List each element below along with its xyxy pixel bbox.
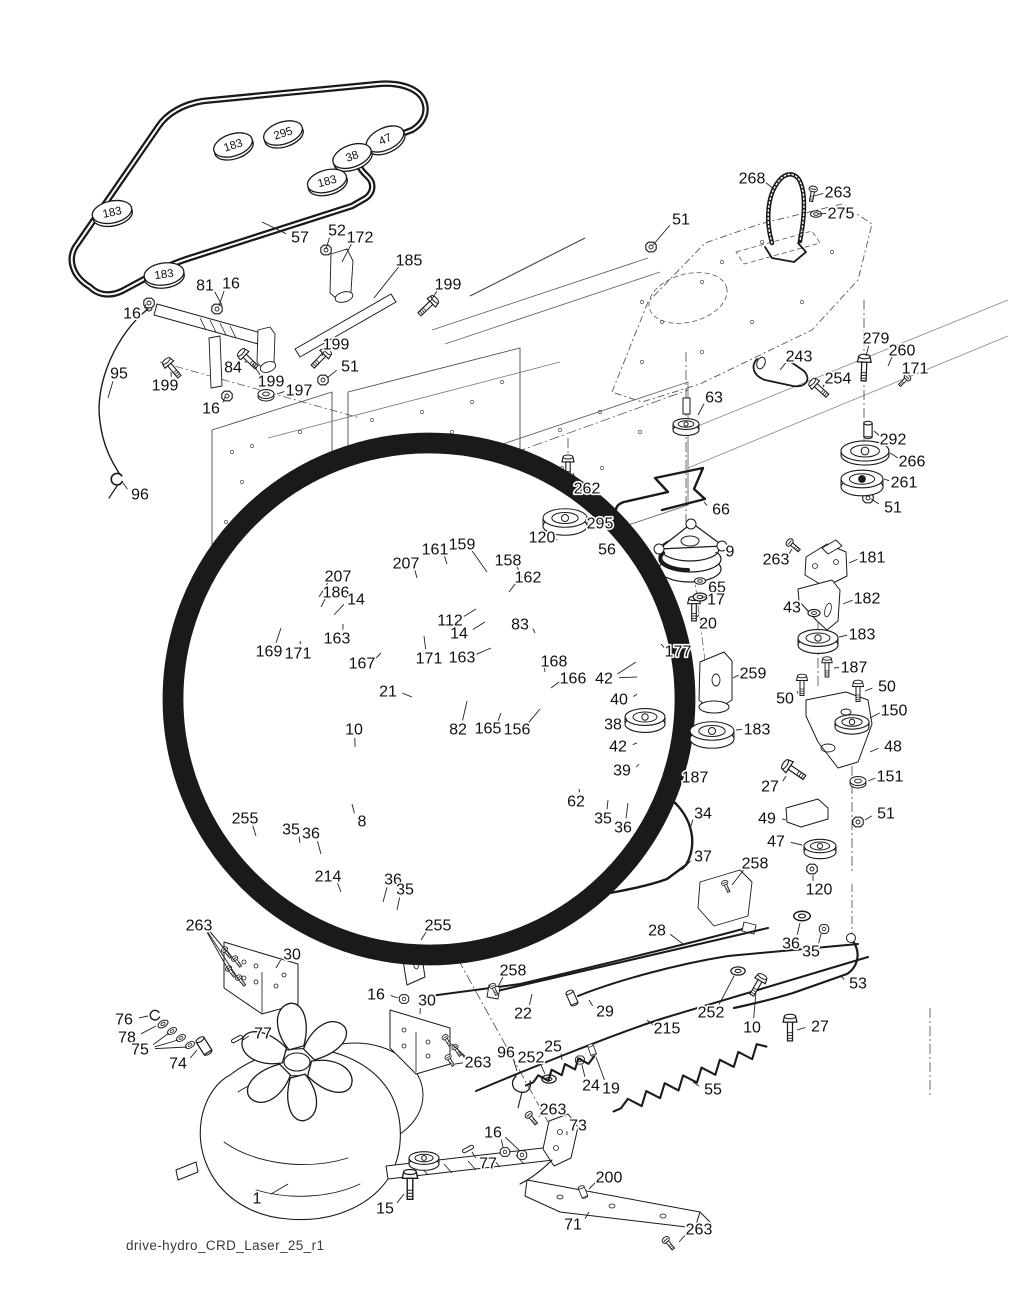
chassis-hole-dot bbox=[640, 360, 643, 363]
callout-51: 51 bbox=[327, 359, 359, 379]
callout-22: 22 bbox=[514, 994, 532, 1023]
part-number-label: 10 bbox=[743, 1020, 761, 1037]
diagram-ellipse bbox=[755, 356, 767, 370]
chassis-hole-dot bbox=[240, 480, 243, 483]
drawing-filename-caption: drive-hydro_CRD_Laser_25_r1 bbox=[126, 1238, 324, 1253]
part-number-label: 207 bbox=[325, 569, 352, 586]
spacer-glyph bbox=[587, 1043, 597, 1056]
callout-182: 182 bbox=[843, 591, 880, 608]
pulley-hub bbox=[708, 727, 715, 734]
nut-glyph bbox=[321, 245, 331, 255]
part-number-label: 185 bbox=[396, 253, 423, 270]
callout-37: 37 bbox=[682, 849, 712, 871]
nut-glyph bbox=[318, 375, 328, 385]
part-number-label: 199 bbox=[323, 337, 350, 354]
part-number-label: 76 bbox=[115, 1012, 133, 1029]
part-number-label: 74 bbox=[169, 1056, 187, 1073]
pulley-glyph bbox=[798, 630, 838, 654]
part-number-label: 158 bbox=[495, 553, 522, 570]
part-number-label: 1 bbox=[253, 1191, 262, 1208]
callout-181: 181 bbox=[849, 550, 885, 567]
part-number-label: 8 bbox=[358, 814, 367, 831]
leader-line bbox=[797, 691, 798, 693]
part-number-label: 169 bbox=[256, 644, 283, 661]
part-number-label: 14 bbox=[347, 592, 365, 609]
part-number-label: 50 bbox=[776, 691, 794, 708]
bolt-glyph bbox=[747, 972, 769, 998]
part-number-label: 37 bbox=[694, 849, 712, 866]
chassis-hole-dot bbox=[700, 280, 703, 283]
callout-81: 81 bbox=[196, 278, 222, 306]
part-number-label: 263 bbox=[186, 918, 213, 935]
leader-line bbox=[791, 842, 802, 845]
part-number-label: 263 bbox=[825, 185, 852, 202]
leader-line bbox=[374, 267, 399, 298]
leader-line bbox=[141, 1026, 156, 1034]
diagram-plate bbox=[176, 1162, 198, 1180]
part-number-label: 51 bbox=[877, 806, 895, 823]
callout-16: 16 bbox=[484, 1125, 519, 1151]
part-number-label: 34 bbox=[694, 806, 712, 823]
spacer-top bbox=[864, 421, 872, 425]
callout-295: 295 bbox=[586, 516, 614, 533]
leader-line bbox=[529, 994, 532, 1005]
callout-263: 263 bbox=[814, 185, 851, 202]
part-number-label: 42 bbox=[609, 739, 627, 756]
callout-36: 36 bbox=[782, 923, 800, 953]
pulley-glyph bbox=[673, 419, 699, 436]
callout-74: 74 bbox=[169, 1050, 197, 1073]
washer-outer bbox=[157, 1018, 170, 1029]
callout-187: 187 bbox=[682, 768, 709, 787]
part-number-label: 62 bbox=[567, 794, 585, 811]
washer-outer bbox=[850, 777, 866, 786]
part-number-label: 162 bbox=[515, 570, 542, 587]
nut-glyph bbox=[819, 925, 828, 934]
leader-line bbox=[849, 559, 857, 563]
leader-line bbox=[579, 789, 580, 792]
part-number-label: 16 bbox=[484, 1125, 502, 1142]
part-number-label: 73 bbox=[569, 1118, 587, 1135]
chassis-hole-dot bbox=[720, 260, 723, 263]
part-number-label: 27 bbox=[811, 1019, 829, 1036]
callout-73: 73 bbox=[567, 1118, 587, 1136]
leader-line bbox=[783, 776, 786, 781]
screw-glyph bbox=[524, 1110, 540, 1126]
part-number-label: 77 bbox=[479, 1156, 497, 1173]
screw-glyph bbox=[661, 1235, 677, 1251]
callout-279: 279 bbox=[863, 331, 890, 357]
leader-line bbox=[868, 778, 875, 781]
bolt-head-top bbox=[563, 455, 573, 459]
callout-76: 76 bbox=[115, 1012, 148, 1029]
callout-29: 29 bbox=[589, 1000, 614, 1021]
part-number-label: 19 bbox=[602, 1081, 620, 1098]
chassis-hole-dot bbox=[370, 418, 373, 421]
diagram-line bbox=[470, 238, 585, 296]
part-number-label: 260 bbox=[889, 343, 916, 360]
part-number-label: 27 bbox=[761, 779, 779, 796]
part-number-label: 252 bbox=[518, 1050, 545, 1067]
leader-line bbox=[884, 479, 889, 481]
diagram-line bbox=[700, 1212, 710, 1222]
part-number-label: 262 bbox=[574, 481, 601, 498]
callout-49: 49 bbox=[758, 811, 786, 828]
part-number-label: 16 bbox=[367, 987, 385, 1004]
part-number-label: 42 bbox=[595, 671, 613, 688]
pulley-glyph bbox=[841, 470, 883, 496]
callout-183: 183 bbox=[839, 627, 875, 644]
part-number-label: 38 bbox=[604, 717, 622, 734]
nut-body bbox=[321, 245, 331, 255]
bolt-shaft bbox=[418, 301, 433, 316]
part-number-label: 215 bbox=[654, 1021, 681, 1038]
part-number-label: 182 bbox=[854, 591, 881, 608]
callout-254: 254 bbox=[823, 371, 851, 388]
part-number-label: 55 bbox=[704, 1082, 722, 1099]
callout-20: 20 bbox=[697, 615, 717, 633]
callout-187: 187 bbox=[834, 660, 867, 677]
leader-line bbox=[455, 1063, 463, 1064]
part-number-label: 161 bbox=[422, 542, 449, 559]
leader-line bbox=[704, 502, 707, 506]
diagram-plate bbox=[683, 398, 690, 414]
part-number-label: 266 bbox=[899, 454, 926, 471]
part-number-label: 181 bbox=[859, 550, 886, 567]
diagram-plate bbox=[698, 870, 752, 926]
part-number-label: 20 bbox=[699, 616, 717, 633]
part-number-label: 48 bbox=[884, 739, 902, 756]
part-number-label: 261 bbox=[891, 475, 918, 492]
part-number-label: 263 bbox=[540, 1102, 567, 1119]
part-number-label: 53 bbox=[849, 976, 867, 993]
washer-glyph bbox=[166, 1026, 177, 1036]
nut-glyph bbox=[807, 864, 817, 874]
nut-glyph bbox=[517, 1151, 526, 1160]
callout-292: 292 bbox=[874, 431, 906, 449]
part-number-label: 22 bbox=[514, 1006, 532, 1023]
pulley-hub bbox=[859, 476, 866, 483]
part-number-label: 49 bbox=[758, 811, 776, 828]
pulley-glyph bbox=[690, 722, 734, 748]
spacer-glyph bbox=[195, 1036, 213, 1057]
callout-120: 120 bbox=[529, 530, 557, 547]
part-number-label: 243 bbox=[786, 349, 813, 366]
chassis-hole-dot bbox=[830, 250, 833, 253]
leader-line bbox=[874, 431, 879, 436]
leader-line bbox=[715, 552, 718, 553]
leader-line bbox=[797, 1028, 805, 1030]
part-number-label: 43 bbox=[783, 600, 801, 617]
bolt-glyph bbox=[783, 1014, 797, 1041]
chassis-hole-dot bbox=[230, 450, 233, 453]
pulley-glyph bbox=[409, 1152, 439, 1171]
callout-275: 275 bbox=[818, 206, 854, 223]
callout-51: 51 bbox=[865, 806, 895, 823]
part-number-label: 150 bbox=[881, 703, 908, 720]
chassis-hole-dot bbox=[760, 240, 763, 243]
leader-line bbox=[626, 718, 627, 720]
part-number-label: 36 bbox=[782, 936, 800, 953]
nut-body bbox=[222, 391, 232, 401]
part-number-label: 292 bbox=[880, 432, 907, 449]
diagram-line bbox=[616, 468, 705, 520]
chassis-hole-dot bbox=[800, 300, 803, 303]
part-number-label: 36 bbox=[614, 820, 632, 837]
part-number-label: 96 bbox=[131, 487, 149, 504]
bolt-glyph bbox=[797, 674, 808, 695]
callout-263: 263 bbox=[539, 1102, 566, 1119]
nut-body bbox=[853, 817, 863, 827]
leader-line bbox=[870, 713, 880, 718]
part-number-label: 24 bbox=[582, 1078, 600, 1095]
pulley-hub bbox=[684, 422, 688, 426]
callout-47: 47 bbox=[767, 834, 802, 851]
leader-line bbox=[782, 819, 786, 820]
part-number-label: 159 bbox=[449, 537, 476, 554]
leader-line bbox=[834, 667, 839, 668]
part-number-label: 151 bbox=[877, 769, 904, 786]
callout-34: 34 bbox=[691, 806, 712, 827]
pulley-hub bbox=[422, 1156, 427, 1161]
chassis-hole-dot bbox=[500, 380, 503, 383]
part-number-label: 172 bbox=[347, 230, 374, 247]
callout-183: 183 bbox=[736, 722, 770, 739]
part-number-label: 166 bbox=[560, 671, 587, 688]
part-number-label: 51 bbox=[341, 359, 359, 376]
callout-96: 96 bbox=[497, 1045, 517, 1072]
part-number-label: 82 bbox=[449, 722, 467, 739]
callout-199: 199 bbox=[322, 337, 349, 357]
part-number-label: 9 bbox=[726, 544, 735, 561]
bolt-glyph bbox=[857, 354, 872, 381]
part-number-label: 186 bbox=[323, 585, 350, 602]
diagram-plate bbox=[209, 336, 222, 388]
leader-line bbox=[865, 816, 872, 820]
callout-243: 243 bbox=[780, 349, 812, 371]
chassis-hole-dot bbox=[600, 466, 603, 469]
part-number-label: 28 bbox=[648, 923, 666, 940]
part-number-label: 199 bbox=[152, 378, 179, 395]
part-number-label: 30 bbox=[418, 993, 436, 1010]
part-number-label: 16 bbox=[222, 276, 240, 293]
bolt-glyph bbox=[415, 294, 440, 319]
washer-glyph bbox=[794, 911, 811, 921]
part-number-label: 156 bbox=[504, 722, 531, 739]
leader-line bbox=[139, 1016, 148, 1018]
part-number-label: 165 bbox=[475, 721, 502, 738]
part-number-label: 25 bbox=[544, 1039, 562, 1056]
callout-262: 262 bbox=[573, 473, 600, 498]
part-number-label: 183 bbox=[849, 627, 876, 644]
part-number-label: 168 bbox=[541, 654, 568, 671]
leader-line bbox=[155, 1047, 187, 1049]
part-number-label: 167 bbox=[349, 656, 376, 673]
bolt-head-top bbox=[404, 1169, 417, 1174]
callout-261: 261 bbox=[884, 475, 917, 492]
part-number-label: 263 bbox=[686, 1222, 713, 1239]
key-glyph bbox=[231, 1035, 243, 1044]
leader-line bbox=[843, 600, 852, 604]
part-number-label: 84 bbox=[224, 360, 242, 377]
leader-line bbox=[870, 748, 878, 752]
part-number-label: 47 bbox=[767, 834, 785, 851]
diagram-line bbox=[72, 84, 426, 295]
callout-200: 200 bbox=[589, 1170, 622, 1190]
part-number-label: 163 bbox=[449, 650, 476, 667]
screw-shaft bbox=[666, 1241, 674, 1250]
callout-16: 16 bbox=[219, 276, 240, 307]
part-number-label: 77 bbox=[254, 1026, 272, 1043]
part-number-label: 187 bbox=[682, 770, 709, 787]
washer-outer bbox=[166, 1026, 177, 1036]
diagram-line bbox=[786, 799, 828, 827]
pulley-hub bbox=[815, 635, 821, 641]
washer-outer bbox=[808, 609, 820, 616]
nut-glyph bbox=[212, 304, 222, 314]
part-number-label: 96 bbox=[497, 1045, 515, 1062]
bolt-head-top bbox=[784, 1014, 795, 1019]
part-number-label: 30 bbox=[283, 947, 301, 964]
bolt-head-top bbox=[798, 674, 807, 678]
leader-line bbox=[123, 483, 127, 489]
washer-outer bbox=[794, 911, 811, 921]
fan-hub bbox=[284, 1053, 310, 1071]
part-number-label: 120 bbox=[806, 882, 833, 899]
leader-line bbox=[865, 688, 872, 691]
callout-27: 27 bbox=[761, 776, 786, 796]
callout-252: 252 bbox=[518, 1050, 545, 1075]
pulley-hub bbox=[861, 447, 869, 455]
pulley-glyph bbox=[835, 715, 869, 734]
retainer-ring bbox=[150, 1010, 159, 1020]
callout-28: 28 bbox=[648, 923, 683, 945]
diagram-line bbox=[768, 174, 804, 243]
leader-line bbox=[691, 820, 693, 826]
parts-diagram-page: 1832954738183183183 57521721851998116169… bbox=[0, 0, 1024, 1316]
leader-line bbox=[890, 453, 898, 458]
diagram-canvas: 1832954738183183183 57521721851998116169… bbox=[0, 0, 1024, 1316]
ring-glyph bbox=[111, 473, 122, 485]
nut-body bbox=[807, 864, 817, 874]
callout-35: 35 bbox=[802, 934, 821, 961]
leader-line bbox=[736, 729, 742, 730]
callout-53: 53 bbox=[841, 976, 867, 993]
washer-outer bbox=[731, 967, 745, 975]
callout-24: 24 bbox=[582, 1065, 600, 1095]
nut-glyph bbox=[399, 995, 408, 1004]
nut-body bbox=[318, 375, 328, 385]
chassis-hole-dot bbox=[638, 430, 641, 433]
washerBig-glyph bbox=[258, 390, 274, 402]
diagram-hole bbox=[654, 544, 664, 554]
part-number-label: 81 bbox=[196, 278, 214, 295]
diagram-line bbox=[445, 272, 660, 344]
chassis-hole-dot bbox=[298, 430, 301, 433]
part-number-label: 259 bbox=[740, 666, 767, 683]
part-number-label: 214 bbox=[315, 869, 342, 886]
leader-line bbox=[589, 1000, 593, 1006]
callout-268: 268 bbox=[739, 171, 775, 191]
spacer-glyph bbox=[565, 989, 578, 1007]
washer-glyph bbox=[808, 609, 820, 616]
chassis-hole-dot bbox=[420, 410, 423, 413]
leader-line bbox=[245, 361, 246, 363]
part-number-label: 63 bbox=[705, 390, 723, 407]
retainer-ring bbox=[111, 473, 122, 485]
part-number-label: 56 bbox=[598, 542, 616, 559]
part-number-label: 14 bbox=[450, 626, 468, 643]
part-number-label: 200 bbox=[596, 1170, 623, 1187]
part-number-label: 163 bbox=[324, 631, 351, 648]
nut-body bbox=[517, 1151, 526, 1160]
part-number-label: 17 bbox=[707, 592, 725, 609]
callout-171: 171 bbox=[902, 361, 929, 380]
callout-51: 51 bbox=[871, 499, 902, 517]
pulley-hub bbox=[642, 714, 648, 720]
screw-shaft bbox=[529, 1116, 537, 1125]
part-number-label: 51 bbox=[672, 212, 690, 229]
leader-line bbox=[698, 404, 704, 415]
nut-body bbox=[500, 1148, 509, 1157]
part-number-label: 39 bbox=[613, 763, 631, 780]
leader-line bbox=[582, 1065, 585, 1077]
part-number-label: 35 bbox=[802, 944, 820, 961]
callout-16: 16 bbox=[202, 397, 225, 418]
leader-line bbox=[839, 635, 847, 637]
chassis-hole-dot bbox=[558, 428, 561, 431]
diagram-line bbox=[798, 580, 840, 630]
chassis-hole-dot bbox=[250, 444, 253, 447]
leader-line bbox=[391, 996, 398, 998]
part-number-label: 252 bbox=[698, 1005, 725, 1022]
part-number-label: 50 bbox=[878, 679, 896, 696]
pulley-hub bbox=[561, 514, 568, 521]
nut-glyph bbox=[500, 1148, 509, 1157]
washer-outer bbox=[258, 390, 274, 399]
bolt-shaft bbox=[168, 363, 181, 378]
callout-120: 120 bbox=[806, 875, 833, 899]
bolt-head-top bbox=[823, 657, 832, 660]
diagram-line bbox=[109, 486, 117, 498]
chassis-hole-dot bbox=[450, 430, 453, 433]
nut-glyph bbox=[853, 817, 863, 827]
part-number-label: 255 bbox=[232, 811, 259, 828]
part-number-label: 29 bbox=[596, 1004, 614, 1021]
pulley-glyph bbox=[625, 709, 665, 733]
bolt-shaft bbox=[311, 353, 326, 368]
part-number-label: 83 bbox=[511, 617, 529, 634]
part-number-label: 171 bbox=[416, 651, 443, 668]
screw-shaft bbox=[791, 543, 801, 552]
leader-line bbox=[277, 392, 284, 394]
part-number-label: 268 bbox=[739, 171, 766, 188]
leader-line bbox=[797, 923, 800, 935]
pulley-hub bbox=[817, 843, 822, 848]
belt-pulley-badge: 183 bbox=[90, 197, 134, 230]
callout-266: 266 bbox=[890, 453, 925, 471]
bolt-glyph bbox=[822, 657, 832, 677]
part-number-label: 75 bbox=[131, 1042, 149, 1059]
diagram-hole bbox=[686, 519, 696, 529]
part-number-label: 16 bbox=[123, 306, 141, 323]
part-number-label: 51 bbox=[884, 500, 902, 517]
leader-line bbox=[108, 381, 113, 398]
washer-glyph bbox=[157, 1018, 170, 1029]
part-number-label: 177 bbox=[665, 644, 692, 661]
diagram-line bbox=[200, 1049, 400, 1220]
part-number-label: 263 bbox=[763, 552, 790, 569]
